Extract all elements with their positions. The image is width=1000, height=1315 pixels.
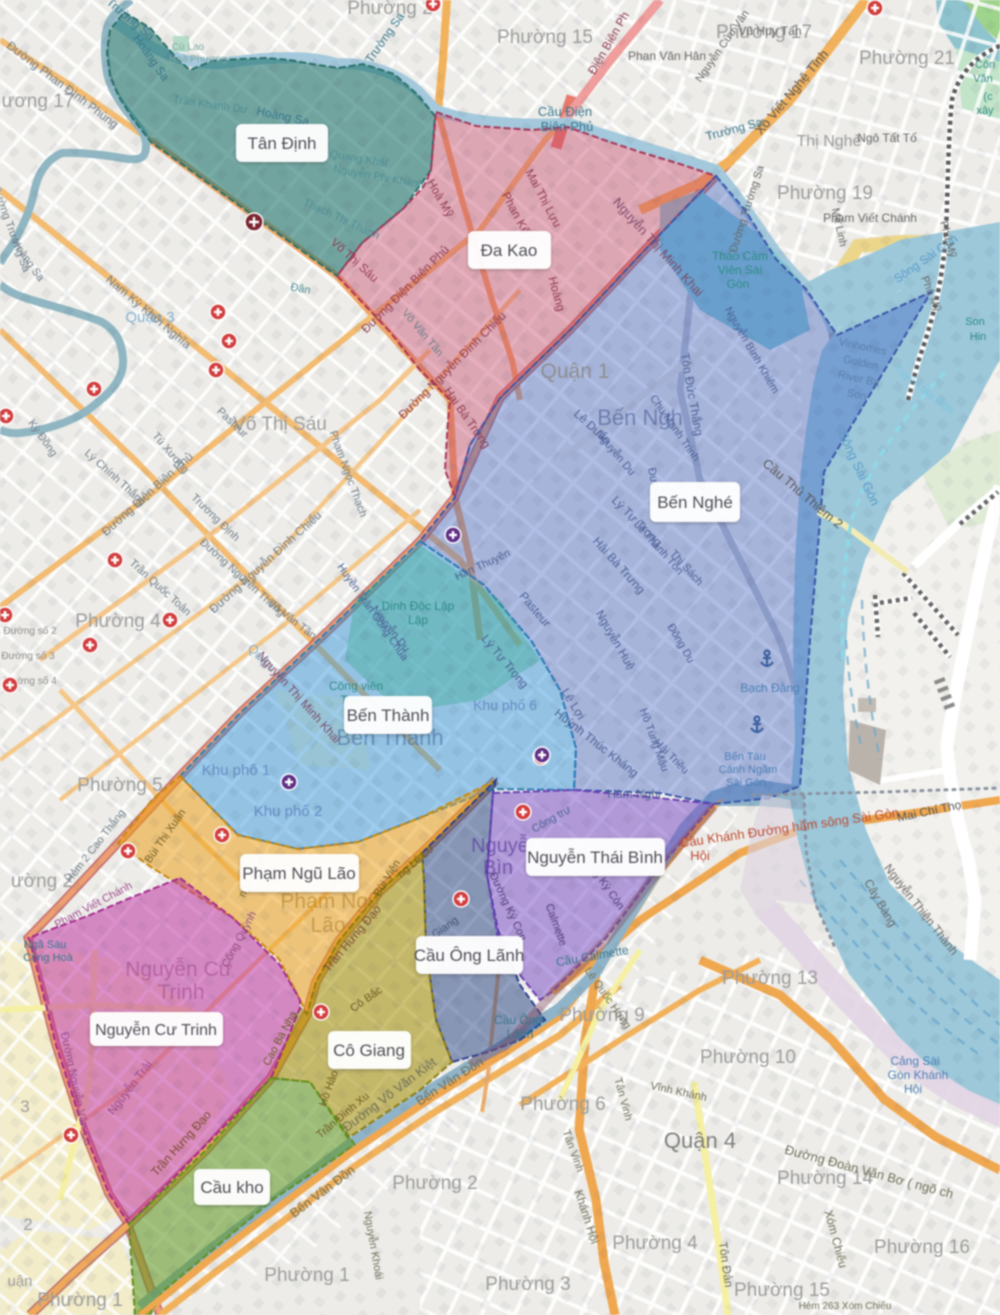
svg-text:Biên Phủ: Biên Phủ [541,119,594,134]
svg-text:Phường 15: Phường 15 [734,1280,830,1301]
svg-text:Thị Nghè: Thị Nghè [797,133,862,150]
svg-text:Phường 6: Phường 6 [520,1094,605,1115]
svg-text:Đường số 2: Đường số 2 [3,625,57,637]
svg-text:Phường 21: Phường 21 [859,48,955,69]
svg-text:Lãnh: Lãnh [507,1027,534,1041]
svg-text:Cầu kho: Cầu kho [200,1178,263,1197]
svg-text:Phường 19: Phường 19 [777,183,873,204]
svg-text:Gòn: Gòn [727,277,750,291]
svg-text:Nguyễn Thái Bình: Nguyễn Thái Bình [527,848,663,867]
svg-text:Dinh Độc Lập: Dinh Độc Lập [382,599,455,613]
svg-text:Lão: Lão [310,914,345,937]
svg-text:Cánh Ngầm: Cánh Ngầm [719,764,778,776]
svg-text:Phường 1: Phường 1 [264,1265,349,1286]
svg-text:Bến Tàu: Bến Tàu [724,751,765,763]
svg-text:Khu phố 2: Khu phố 2 [254,803,322,820]
svg-text:Phường 4: Phường 4 [75,611,161,632]
svg-text:Phường 1: Phường 1 [37,1290,122,1311]
svg-text:Phạm Ngũ Lão: Phạm Ngũ Lão [242,864,355,883]
svg-text:Hoà Phượng: Hoà Phượng [169,54,227,65]
svg-text:Phường 2: Phường 2 [392,1173,477,1194]
svg-text:Khu phố 6: Khu phố 6 [473,697,537,713]
svg-text:Đa Kao: Đa Kao [481,241,538,260]
svg-text:Cộng Hoà: Cộng Hoà [23,952,73,964]
svg-text:Khu phố 1: Khu phố 1 [202,762,270,779]
svg-text:Bạch Đằng: Bạch Đằng [740,680,799,695]
svg-text:Cù Lao: Cù Lao [172,42,205,53]
svg-text:Nguyễn Cư: Nguyễn Cư [125,958,232,981]
svg-text:Văn: Văn [973,73,993,85]
svg-text:Cầu Ông: Cầu Ông [494,1012,542,1027]
svg-text:(c: (c [983,91,993,103]
svg-text:Bến Nghé: Bến Nghé [657,493,733,512]
svg-text:Tân Định: Tân Định [248,134,317,153]
svg-text:Công viên: Công viên [329,679,383,693]
svg-text:Phường 13: Phường 13 [722,968,818,989]
svg-text:Côn: Côn [975,59,995,71]
svg-text:Ngã Sáu: Ngã Sáu [24,939,67,951]
svg-text:Nguyễn Cư Trinh: Nguyễn Cư Trinh [95,1020,217,1039]
svg-text:Hàm Nghi: Hàm Nghi [607,787,660,801]
svg-text:Viên Sài: Viên Sài [718,263,762,277]
svg-text:Cầu Điện: Cầu Điện [538,104,592,119]
svg-text:Sài Gòn: Sài Gòn [726,777,766,789]
svg-text:Phường 5: Phường 5 [77,775,162,796]
svg-text:Cầu Ông Lãnh: Cầu Ông Lãnh [414,946,525,965]
svg-text:Bến Thành: Bến Thành [347,706,430,725]
svg-text:Lập: Lập [408,613,428,627]
svg-text:Phường 2: Phường 2 [347,0,432,19]
svg-text:Phạm Viết Chánh: Phạm Viết Chánh [823,211,917,225]
svg-text:Hẻm 263 Xóm Chiếu: Hẻm 263 Xóm Chiếu [799,1300,892,1312]
svg-text:Ngô Tất Tố: Ngô Tất Tố [857,131,917,145]
svg-text:Phường 15: Phường 15 [497,27,593,48]
svg-text:Phan Văn Hân: Phan Văn Hân [628,49,706,63]
svg-text:Phường 10: Phường 10 [700,1047,796,1068]
svg-text:ường 2: ường 2 [11,871,73,892]
svg-text:Hin: Hin [970,331,987,343]
svg-text:Quận 4: Quận 4 [664,1128,736,1153]
svg-text:xây: xây [976,105,994,117]
svg-text:Trinh: Trinh [157,981,204,1004]
svg-text:Phạm Ngũ: Phạm Ngũ [280,890,379,913]
svg-text:Hội: Hội [690,848,710,863]
svg-text:Phường 3: Phường 3 [485,1274,570,1295]
svg-text:Phường 4: Phường 4 [612,1233,698,1254]
svg-text:Phường 16: Phường 16 [874,1237,970,1258]
svg-text:Cô Giang: Cô Giang [333,1041,405,1060]
svg-text:Thảo Cầm: Thảo Cầm [712,249,768,263]
svg-text:Quận 1: Quận 1 [541,360,610,383]
svg-text:Gòn Khánh: Gòn Khánh [888,1068,949,1082]
svg-text:uận: uận [7,1273,32,1290]
svg-text:Hội: Hội [904,1082,922,1096]
svg-text:Đường số 3: Đường số 3 [1,650,55,662]
svg-text:2: 2 [23,1215,32,1234]
svg-text:Son: Son [965,316,985,328]
svg-text:Vũ Huy Tấn: Vũ Huy Tấn [738,24,801,38]
svg-text:Nguyễ: Nguyễ [471,834,529,857]
svg-text:Cảng Sài: Cảng Sài [890,1054,939,1068]
svg-text:3: 3 [20,1097,29,1116]
